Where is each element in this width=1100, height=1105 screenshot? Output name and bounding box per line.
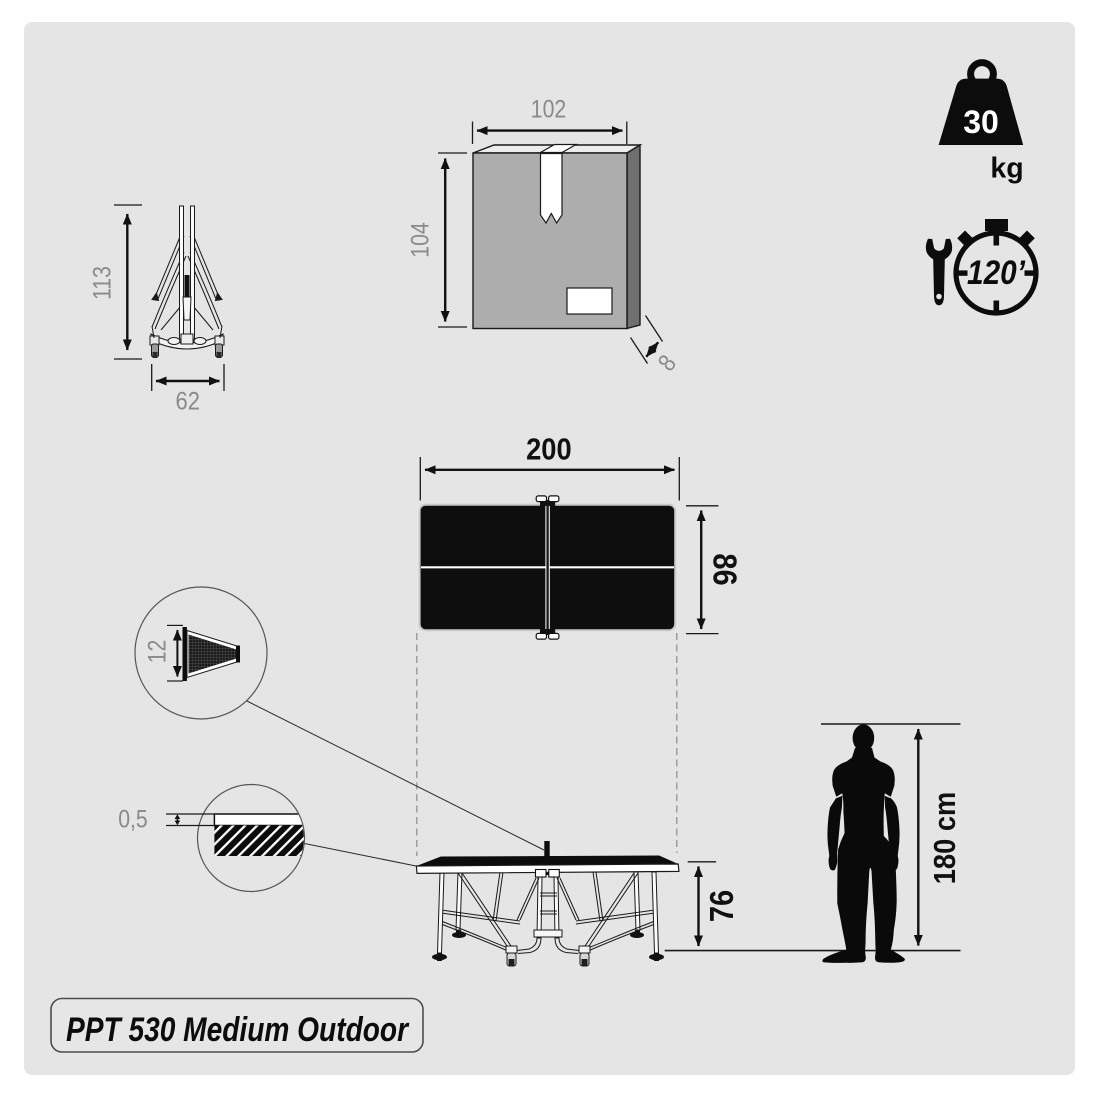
svg-text:113: 113 xyxy=(88,266,116,300)
svg-text:30: 30 xyxy=(963,104,999,140)
svg-text:180 cm: 180 cm xyxy=(929,792,963,884)
svg-text:PPT 530 Medium Outdoor: PPT 530 Medium Outdoor xyxy=(66,1010,410,1048)
svg-text:120’: 120’ xyxy=(967,253,1026,291)
svg-text:102: 102 xyxy=(531,95,566,123)
svg-text:kg: kg xyxy=(990,153,1023,185)
svg-text:62: 62 xyxy=(175,387,199,415)
svg-text:0,5: 0,5 xyxy=(118,805,148,833)
svg-text:200: 200 xyxy=(526,433,572,467)
svg-text:104: 104 xyxy=(406,222,434,258)
svg-text:86: 86 xyxy=(706,553,743,585)
svg-text:76: 76 xyxy=(703,890,740,922)
svg-text:12: 12 xyxy=(143,640,171,664)
